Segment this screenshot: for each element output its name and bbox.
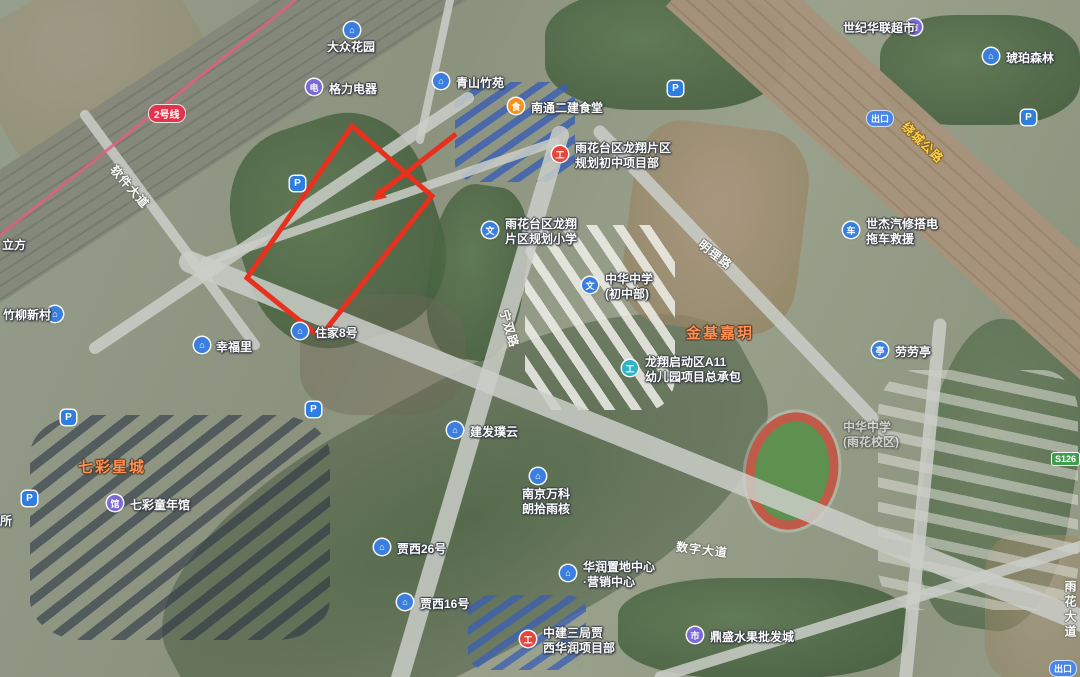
poi-icon-dingsheng-shuiguo[interactable]: 市 [687,627,703,643]
poi-label-line: 中华中学 [605,272,653,287]
poi-label-line: 雨花台区龙翔片区 [575,141,671,156]
poi-label-line: 世杰汽修搭电 [866,217,938,232]
poi-label-line: 幼儿园项目总承包 [645,370,741,385]
poi-label-line: 大众花园 [327,40,375,55]
poi-label-nantong-erjian-shitang[interactable]: 南通二建食堂 [531,101,603,116]
poi-label-line: 立方 [2,238,26,253]
road-label-ruanjian-dadao: 软件大道 [107,161,154,211]
poi-icon-dazhong-huayuan[interactable]: ⌂ [344,22,360,38]
poi-label-qicai-tongnianguan[interactable]: 七彩童年馆 [130,498,190,513]
poi-label-line: 规划初中项目部 [575,156,671,171]
label-layer: ⌂大众花园电格力电器⌂青山竹苑食南通二建食堂工雨花台区龙翔片区规划初中项目部文雨… [0,0,1080,677]
poi-label-line: (雨花校区) [843,435,899,450]
poi-label-line: 世纪华联超市 [843,21,915,36]
poi-label-line: 鼎盛水果批发城 [710,630,794,645]
poi-icon-jiaxi-16hao[interactable]: ⌂ [397,594,413,610]
road-label-raocheng-gonglu: 绕城公路 [898,118,947,166]
poi-label-line: 七彩童年馆 [130,498,190,513]
badge-exit-top: 出口 [866,110,894,127]
poi-icon-zhongjian-sanju-xiangmubu[interactable]: 工 [520,631,536,647]
area-label-jinji-jiayue[interactable]: 金基嘉玥 [686,322,754,343]
satellite-map[interactable]: ⌂大众花园电格力电器⌂青山竹苑食南通二建食堂工雨花台区龙翔片区规划初中项目部文雨… [0,0,1080,677]
road-label-mingli-lu: 明理路 [695,236,736,273]
poi-label-zhujia-8hao[interactable]: 住家8号 [315,326,358,341]
parking-icon-1[interactable]: P [290,176,305,191]
poi-label-shijie-qixiu[interactable]: 世杰汽修搭电拖车救援 [866,217,938,247]
poi-label-line: ·营销中心 [583,575,655,590]
badge-route-s126: S126 [1051,452,1080,466]
poi-label-longxiang-guihua-xiaoxue[interactable]: 雨花台区龙翔片区规划小学 [505,217,577,247]
poi-icon-longxiang-a11-youeryuan[interactable]: 工 [622,360,638,376]
badge-metro-line-2: 2号线 [149,105,185,122]
poi-label-dingsheng-shuiguo[interactable]: 鼎盛水果批发城 [710,630,794,645]
poi-label-line: 竹柳新村 [3,308,51,323]
poi-label-geli-dianqi[interactable]: 格力电器 [329,82,377,97]
poi-label-zhuliu-xincun[interactable]: 竹柳新村 [3,308,51,323]
poi-label-line: 住家8号 [315,326,358,341]
poi-label-line: 所 [0,514,12,529]
parking-icon-4[interactable]: P [306,402,321,417]
parking-icon-6[interactable]: P [22,491,37,506]
poi-label-longxiang-chuzhong-xiangmubu[interactable]: 雨花台区龙翔片区规划初中项目部 [575,141,671,171]
poi-label-jiaxi-26hao[interactable]: 贾西26号 [397,542,446,557]
poi-label-line: 贾西16号 [420,597,469,612]
poi-label-line: 南通二建食堂 [531,101,603,116]
poi-label-wanke-langshi-yuhe[interactable]: 南京万科朗拾雨核 [522,487,570,517]
poi-label-hupo-senlin[interactable]: 琥珀森林 [1006,51,1054,66]
poi-label-line: 青山竹苑 [456,76,504,91]
poi-label-line: 格力电器 [329,82,377,97]
poi-icon-shijie-qixiu[interactable]: 车 [843,222,859,238]
poi-label-zhongjian-sanju-xiangmubu[interactable]: 中建三局贾西华润项目部 [543,626,615,656]
poi-label-huarun-zhidi-zhongxin[interactable]: 华润置地中心·营销中心 [583,560,655,590]
poi-icon-laolao-ting[interactable]: 亭 [872,342,888,358]
parking-icon-2[interactable]: P [668,81,683,96]
poi-icon-wanke-langshi-yuhe[interactable]: ⌂ [530,468,546,484]
poi-label-longxiang-a11-youeryuan[interactable]: 龙翔启动区A11幼儿园项目总承包 [645,355,741,385]
poi-label-lifang[interactable]: 立方 [2,238,26,253]
road-label-ningshuang-lu: 宁双路 [496,307,523,349]
poi-label-line: (初中部) [605,287,653,302]
poi-icon-zhonghua-zhongxue-chuzhongbu[interactable]: 文 [582,277,598,293]
poi-label-line: 拖车救援 [866,232,938,247]
poi-label-line: 琥珀森林 [1006,51,1054,66]
poi-label-line: 西华润项目部 [543,641,615,656]
poi-icon-nantong-erjian-shitang[interactable]: 食 [508,98,524,114]
poi-label-jianfa-puyun[interactable]: 建发璞云 [470,425,518,440]
poi-icon-jiaxi-26hao[interactable]: ⌂ [374,539,390,555]
poi-icon-zhujia-8hao[interactable]: ⌂ [292,323,308,339]
poi-label-line: 华润置地中心 [583,560,655,575]
poi-label-line: 幸福里 [216,340,252,355]
poi-icon-hupo-senlin[interactable]: ⌂ [983,48,999,64]
poi-label-line: 片区规划小学 [505,232,577,247]
poi-label-line: 贾西26号 [397,542,446,557]
poi-label-line: 朗拾雨核 [522,502,570,517]
area-label-qicai-xingcheng[interactable]: 七彩星城 [78,456,146,477]
parking-icon-3[interactable]: P [1021,110,1036,125]
poi-icon-huarun-zhidi-zhongxin[interactable]: ⌂ [560,565,576,581]
poi-label-line: 龙翔启动区A11 [645,355,741,370]
poi-icon-longxiang-guihua-xiaoxue[interactable]: 文 [482,222,498,238]
poi-label-line: 南京万科 [522,487,570,502]
poi-label-xingfuli[interactable]: 幸福里 [216,340,252,355]
poi-label-line: 劳劳亭 [895,345,931,360]
poi-label-shiji-hualian-chaoshi[interactable]: 世纪华联超市 [843,21,915,36]
road-label-shuzi-dadao: 数字大道 [675,538,729,561]
poi-label-suo[interactable]: 所 [0,514,12,529]
poi-label-line: 雨花台区龙翔 [505,217,577,232]
parking-icon-5[interactable]: P [61,410,76,425]
poi-label-dazhong-huayuan[interactable]: 大众花园 [327,40,375,55]
poi-label-zhonghua-zhongxue-chuzhongbu[interactable]: 中华中学(初中部) [605,272,653,302]
poi-label-qingshan-zhuyuan[interactable]: 青山竹苑 [456,76,504,91]
poi-icon-qicai-tongnianguan[interactable]: 馆 [107,495,123,511]
poi-icon-jianfa-puyun[interactable]: ⌂ [447,422,463,438]
poi-icon-qingshan-zhuyuan[interactable]: ⌂ [433,73,449,89]
poi-icon-longxiang-chuzhong-xiangmubu[interactable]: 工 [552,146,568,162]
poi-label-jiaxi-16hao[interactable]: 贾西16号 [420,597,469,612]
poi-label-line: 中建三局贾 [543,626,615,641]
poi-label-laolao-ting[interactable]: 劳劳亭 [895,345,931,360]
poi-icon-geli-dianqi[interactable]: 电 [306,79,322,95]
poi-label-zhonghua-zhongxue-yuhua[interactable]: 中华中学(雨花校区) [843,420,899,450]
badge-exit-bottom: 出口 [1049,660,1077,677]
poi-label-line: 建发璞云 [470,425,518,440]
poi-icon-xingfuli[interactable]: ⌂ [194,337,210,353]
poi-label-line: 中华中学 [843,420,899,435]
road-label-yuhua-dadao: 雨花大道 [1062,580,1079,640]
